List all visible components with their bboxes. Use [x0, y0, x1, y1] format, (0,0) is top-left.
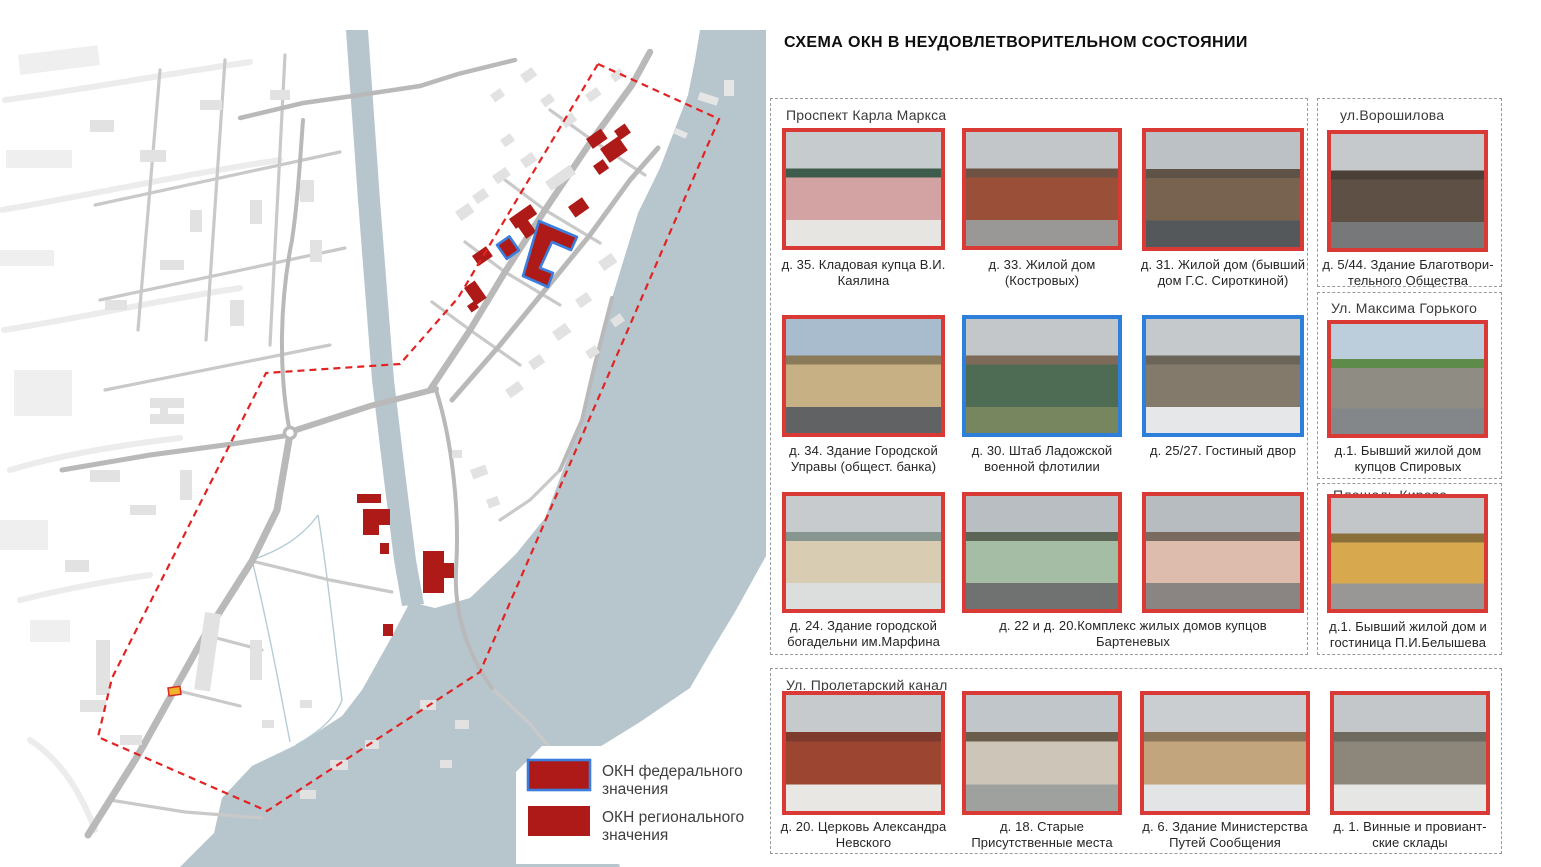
- legend-swatch-federal: [528, 760, 590, 790]
- city-map: ОКН федерального значения ОКН региональн…: [0, 0, 766, 867]
- map-okn-yellow: [168, 686, 181, 696]
- caption-d34: д. 34. Здание Городской Управы (общест. …: [775, 443, 952, 475]
- caption-d31: д. 31. Жилой дом (бывший дом Г.С. Сиротк…: [1137, 257, 1309, 289]
- group-label-karla-marksa: Проспект Карла Маркса: [786, 107, 946, 123]
- photo-d1-sklady: [1330, 691, 1490, 815]
- photo-d31-zhiloy-dom: [1142, 128, 1304, 251]
- photo-d18-prisutstvennye: [962, 691, 1122, 815]
- map-legend: ОКН федерального значения ОКН региональн…: [516, 746, 766, 864]
- group-label-voroshilova: ул.Ворошилова: [1340, 107, 1444, 123]
- page-title: СХЕМА ОКН В НЕУДОВЛЕТВОРИТЕЛЬНОМ СОСТОЯН…: [784, 26, 1474, 60]
- photo-d34-uprava: [782, 315, 945, 437]
- caption-d6: д. 6. Здание Министерства Путей Сообщени…: [1135, 819, 1315, 851]
- photo-d6-ministerstvo: [1140, 691, 1310, 815]
- photo-d20-bartenevykh: [1142, 492, 1304, 613]
- photo-d30-shtab: [962, 315, 1122, 437]
- caption-d30: д. 30. Штаб Ладожской военной флотилии: [955, 443, 1129, 475]
- caption-d18: д. 18. Старые Присутственные места: [955, 819, 1129, 851]
- legend-regional-line2: значения: [602, 827, 668, 844]
- photo-d24-bogadelnya: [782, 492, 945, 613]
- photo-d20-tserkov: [782, 691, 945, 815]
- caption-d1-sklady: д. 1. Винные и провиант-ские склады: [1323, 819, 1497, 851]
- photo-d22-bartenevykh: [962, 492, 1122, 613]
- caption-d20-tserkov: д. 20. Церковь Александра Невского: [775, 819, 952, 851]
- roundabout: [285, 428, 296, 439]
- caption-d1-belysheva: д.1. Бывший жилой дом и гостиница П.И.Бе…: [1320, 619, 1496, 651]
- caption-d33: д. 33. Жилой дом (Костровых): [955, 257, 1129, 289]
- photo-d35-kladovaya: [782, 128, 945, 250]
- photo-d1-belysheva: [1327, 494, 1488, 613]
- photo-d2527-gostiny-dvor: [1142, 315, 1304, 437]
- caption-d1-spirovykh: д.1. Бывший жилой дом купцов Спировых: [1322, 443, 1494, 475]
- legend-swatch-regional: [528, 806, 590, 836]
- slide: ОКН федерального значения ОКН региональн…: [0, 0, 1541, 867]
- photo-d544-blagotvoritelnoe: [1327, 130, 1488, 252]
- photo-d33-zhiloy-dom: [962, 128, 1122, 250]
- caption-d22-d20: д. 22 и д. 20.Комплекс жилых домов купцо…: [962, 618, 1304, 650]
- legend-federal-line1: ОКН федерального: [602, 763, 743, 780]
- photo-d1-spirovykh: [1327, 320, 1488, 438]
- caption-d35: д. 35. Кладовая купца В.И. Каялина: [775, 257, 952, 289]
- legend-federal-line2: значения: [602, 781, 668, 798]
- caption-d2527: д. 25/27. Гостиный двор: [1137, 443, 1309, 459]
- group-label-gorkogo: Ул. Максима Горького: [1331, 300, 1477, 316]
- legend-regional-line1: ОКН регионального: [602, 809, 744, 826]
- caption-d544: д. 5/44. Здание Благотвори-тельного Обще…: [1322, 257, 1494, 289]
- caption-d24: д. 24. Здание городской богадельни им.Ма…: [775, 618, 952, 650]
